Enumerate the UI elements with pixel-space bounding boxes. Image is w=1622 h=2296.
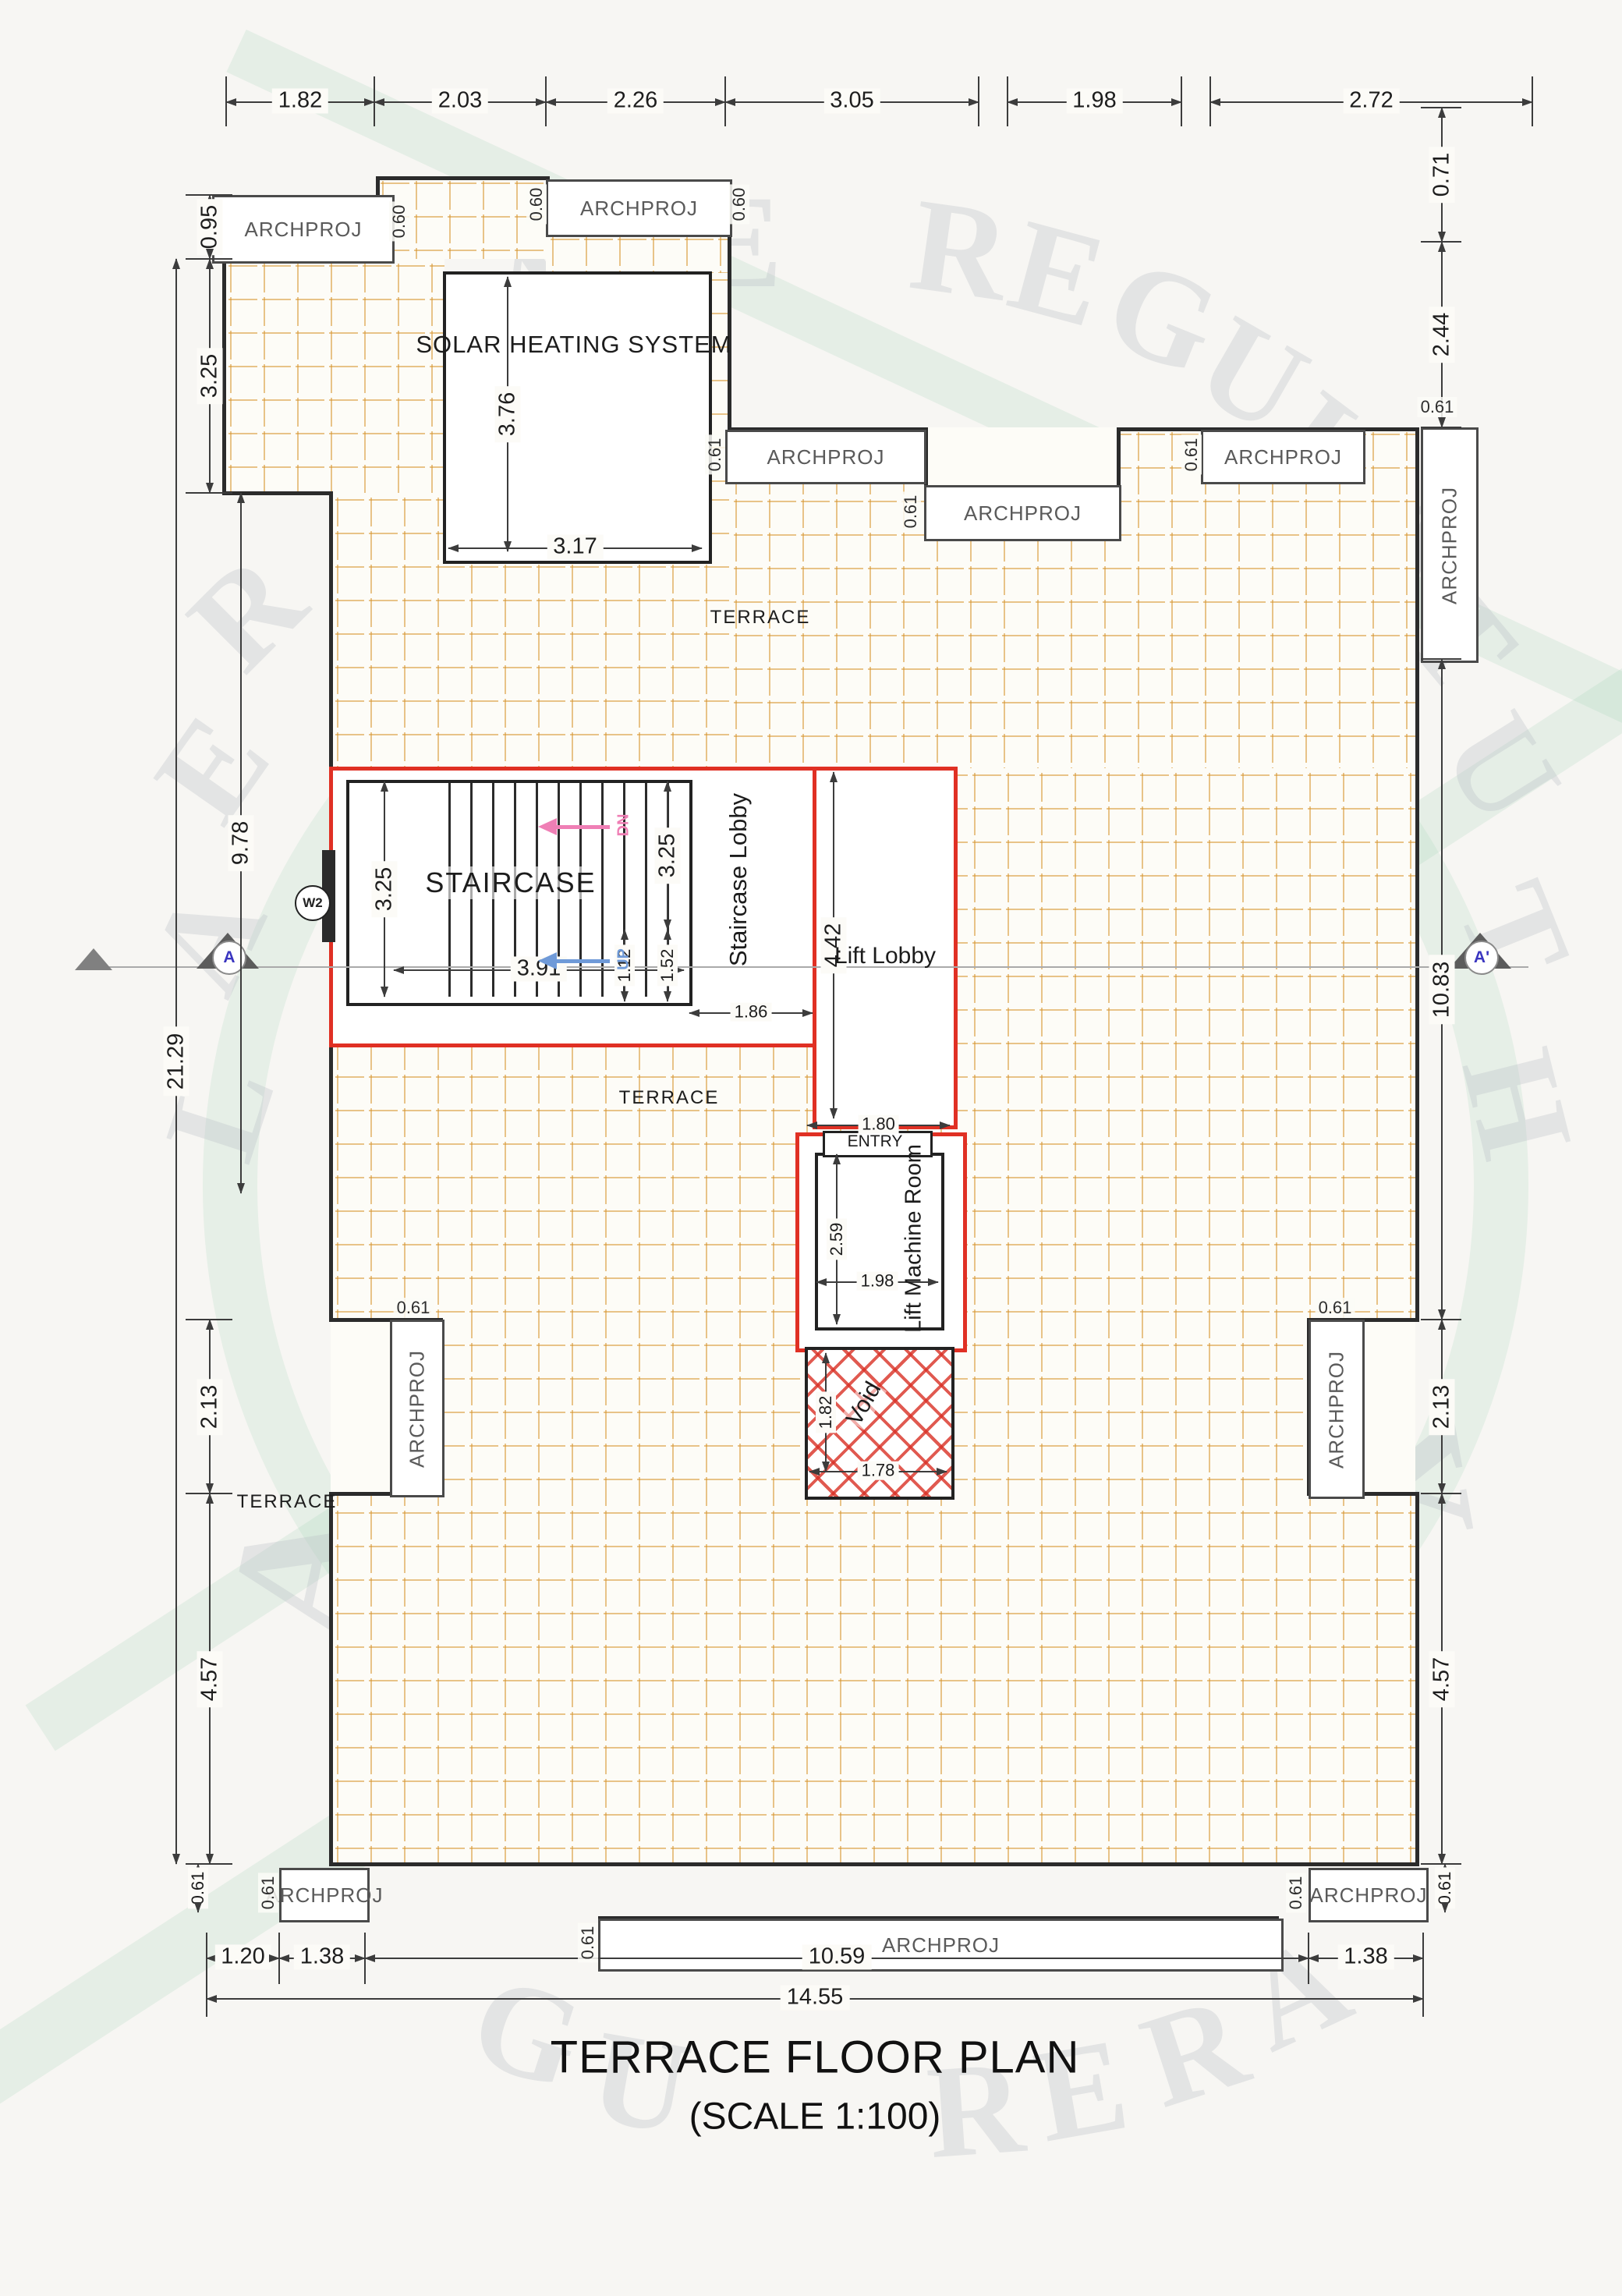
dim-proj-061: 0.61 — [705, 435, 725, 475]
dim-label: 1.98 — [857, 1272, 898, 1291]
dim-proj-061: 0.61 — [1286, 1873, 1306, 1913]
archproj-label: ARCHPROJ — [580, 197, 698, 221]
dim-label: 1.82 — [816, 1392, 836, 1433]
archproj-box-top-2: ARCHPROJ — [546, 179, 732, 237]
dim-left-325: 3.25 — [209, 259, 211, 493]
wall-notch — [924, 430, 1117, 488]
dn-arrow-icon — [538, 818, 557, 835]
dim-left-061: 0.61 — [197, 1864, 199, 1912]
dim-label: 3.25 — [197, 348, 223, 404]
wall-segment — [329, 1862, 1419, 1866]
dim-label: 1.80 — [858, 1115, 899, 1134]
dim-void-178: 1.78 — [809, 1471, 947, 1472]
watermark-letter: E — [998, 197, 1118, 349]
dim-proj-061: 0.61 — [258, 1873, 278, 1913]
dim-stair-152: 1.52 — [667, 930, 668, 1001]
archproj-box-top-left: ARCHPROJ — [212, 195, 395, 264]
dim-label: 1.78 — [858, 1462, 899, 1480]
label-terrace-mid: TERRACE — [619, 1087, 720, 1109]
dim-proj-061: 0.61 — [394, 1298, 434, 1318]
archproj-box-left-notch: ARCHPROJ — [390, 1320, 444, 1497]
dim-label: 0.61 — [1435, 1868, 1455, 1909]
dim-left-2129: 21.29 — [175, 259, 177, 1864]
archproj-box-mid-right: ARCHPROJ — [1201, 430, 1365, 484]
archproj-strip-right: ARCHPROJ — [1421, 427, 1479, 663]
dim-label: 3.76 — [495, 386, 521, 442]
wall-segment — [1415, 427, 1419, 1322]
dim-label: 2.13 — [197, 1378, 223, 1434]
dim-label: 0.61 — [188, 1868, 208, 1909]
wall-segment — [1117, 427, 1121, 488]
dim-label: 1.98 — [1066, 88, 1122, 113]
archproj-box-mid-center: ARCHPROJ — [924, 485, 1121, 541]
archproj-label: ARCHPROJ — [882, 1933, 1000, 1958]
dim-label: 1.20 — [214, 1944, 271, 1969]
dim-proj-061: 0.61 — [1316, 1298, 1355, 1318]
up-arrow-icon — [538, 952, 557, 969]
watermark-letter: T — [1436, 866, 1592, 998]
archproj-box-mid-left: ARCHPROJ — [725, 430, 926, 484]
dim-label: 3.17 — [547, 534, 603, 559]
dim-label: 1.86 — [731, 1003, 772, 1022]
dim-label: 1.82 — [272, 88, 328, 113]
archproj-label: ARCHPROJ — [1310, 1883, 1428, 1908]
dim-left-213: 2.13 — [209, 1320, 211, 1493]
dim-bottom-1455: 14.55 — [207, 1998, 1423, 2000]
up-arrow-label: UP — [615, 948, 633, 970]
dim-top-3: 2.26 — [546, 101, 725, 103]
section-marker-a-prime-circle: A' — [1464, 941, 1499, 975]
dim-bottom-138b: 1.38 — [1309, 1958, 1423, 1959]
section-marker-a-prime-label: A' — [1474, 948, 1489, 967]
dim-proj-060: 0.60 — [389, 202, 409, 242]
label-entry: ENTRY — [848, 1132, 903, 1151]
dim-stair-391: 3.91 — [394, 969, 684, 971]
archproj-label: ARCHPROJ — [964, 501, 1082, 526]
dim-proj-061: 0.61 — [901, 492, 921, 532]
archproj-label: ARCHPROJ — [1438, 487, 1462, 604]
archproj-label: ARCHPROJ — [1224, 445, 1342, 469]
dim-left-978: 9.78 — [240, 493, 242, 1193]
dim-label: 3.05 — [823, 88, 880, 113]
dim-label: 3.25 — [372, 861, 398, 917]
dim-bottom-120: 1.20 — [207, 1958, 279, 1959]
dim-label: 21.29 — [164, 1027, 189, 1097]
dim-label: 4.57 — [1429, 1650, 1455, 1706]
label-terrace-left: TERRACE — [237, 1491, 338, 1513]
drawing-title: TERRACE FLOOR PLAN — [551, 2032, 1080, 2084]
dim-label: 1.38 — [1337, 1944, 1394, 1969]
dim-solar-376: 3.76 — [507, 277, 508, 551]
wall-segment — [1415, 1492, 1419, 1866]
window-w2-tag: W2 — [295, 885, 331, 921]
label-lift-machine-room: Lift Machine Room — [901, 1144, 927, 1333]
dim-label: 1.38 — [294, 1944, 350, 1969]
wall-segment — [329, 1492, 333, 1866]
section-cut-tick — [75, 948, 112, 970]
dim-proj-061: 0.61 — [1181, 435, 1202, 475]
dim-top-6: 2.72 — [1210, 101, 1532, 103]
archproj-label: ARCHPROJ — [244, 218, 362, 242]
watermark-letter: R — [904, 177, 1017, 321]
dim-label: 1.52 — [657, 945, 678, 987]
label-lift-lobby: Lift Lobby — [834, 943, 936, 969]
dim-right-457: 4.57 — [1441, 1493, 1443, 1864]
dim-top-2: 2.03 — [374, 101, 546, 103]
dim-label: 0.71 — [1429, 147, 1455, 203]
dim-label: 2.72 — [1343, 88, 1399, 113]
label-solar-heating: SOLAR HEATING SYSTEM — [416, 331, 731, 359]
archproj-box-bottom-left: ARCHPROJ — [279, 1868, 370, 1922]
dim-label: 2.13 — [1429, 1378, 1455, 1434]
label-staircase-lobby: Staircase Lobby — [724, 793, 753, 966]
archproj-box-right-notch: ARCHPROJ — [1309, 1320, 1365, 1499]
dim-left-095: 0.95 — [209, 195, 211, 259]
section-marker-a-label: A — [223, 948, 235, 967]
dim-label: 3.25 — [655, 827, 681, 884]
dim-proj-060: 0.60 — [526, 185, 547, 225]
archproj-label: ARCHPROJ — [1325, 1351, 1349, 1469]
drawing-scale: (SCALE 1:100) — [689, 2096, 941, 2138]
dim-label: 4.57 — [197, 1650, 223, 1706]
dim-left-457: 4.57 — [209, 1493, 211, 1864]
window-w2-label: W2 — [303, 895, 323, 911]
dim-right-061: 0.61 — [1444, 1864, 1446, 1912]
dn-arrow-label: DN — [615, 814, 633, 837]
label-staircase: STAIRCASE — [425, 866, 596, 899]
watermark-letter: R — [166, 531, 328, 693]
dn-arrow-shaft — [557, 825, 610, 829]
dim-void-182: 1.82 — [825, 1353, 827, 1472]
dim-top-1: 1.82 — [226, 101, 374, 103]
archproj-label: ARCHPROJ — [405, 1350, 430, 1468]
dim-bottom-138a: 1.38 — [279, 1958, 365, 1959]
archproj-box-bottom-right: ARCHPROJ — [1309, 1868, 1429, 1922]
watermark-letter: R — [1128, 1973, 1260, 2129]
up-arrow-shaft — [557, 959, 610, 963]
dim-label: 2.26 — [607, 88, 664, 113]
dim-label: 2.03 — [432, 88, 488, 113]
archproj-label: ARCHPROJ — [266, 1883, 384, 1908]
dim-right-213: 2.13 — [1441, 1320, 1443, 1493]
dim-proj-060: 0.60 — [729, 185, 749, 225]
section-line-aa — [94, 966, 1528, 968]
wall-segment — [222, 257, 226, 495]
dim-stair-325-left: 3.25 — [384, 781, 385, 997]
dim-stair-325-right: 3.25 — [667, 781, 668, 930]
terrace-tiles — [546, 232, 729, 273]
dim-label: 0.95 — [197, 199, 223, 255]
dim-label: 2.59 — [827, 1219, 847, 1260]
dim-label: 10.59 — [802, 1944, 872, 1969]
dim-label: 14.55 — [781, 1985, 850, 2010]
room-solar-heating — [443, 271, 712, 564]
dim-machine-259: 2.59 — [836, 1154, 838, 1324]
dim-tick — [1422, 1933, 1424, 2017]
dim-stair-186: 1.86 — [689, 1012, 813, 1014]
dim-right-071: 0.71 — [1441, 108, 1443, 242]
dim-top-4: 3.05 — [725, 101, 979, 103]
label-terrace-top: TERRACE — [710, 607, 811, 629]
dim-label: 10.83 — [1429, 955, 1455, 1024]
archproj-box-bottom-long: ARCHPROJ — [598, 1919, 1284, 1972]
dim-label: 9.78 — [228, 815, 254, 871]
archproj-label: ARCHPROJ — [767, 445, 884, 469]
dim-proj-061: 0.61 — [578, 1923, 598, 1963]
watermark-letter: E — [133, 694, 292, 842]
dim-right-1083: 10.83 — [1441, 659, 1443, 1320]
dim-label: 2.44 — [1429, 306, 1455, 363]
dim-lift-180: 1.80 — [807, 1125, 950, 1126]
dim-solar-317: 3.17 — [448, 547, 702, 549]
dim-bottom-1059: 10.59 — [365, 1958, 1309, 1959]
dim-right-corner-061: 0.61 — [1418, 397, 1457, 417]
wall-segment — [376, 176, 550, 180]
terrace-floor-plan: S T A T E R E G U L A T R E A L U T H G … — [0, 0, 1622, 2296]
dim-top-5: 1.98 — [1008, 101, 1181, 103]
terrace-tiles — [224, 259, 444, 493]
dim-tick — [206, 1933, 207, 2017]
